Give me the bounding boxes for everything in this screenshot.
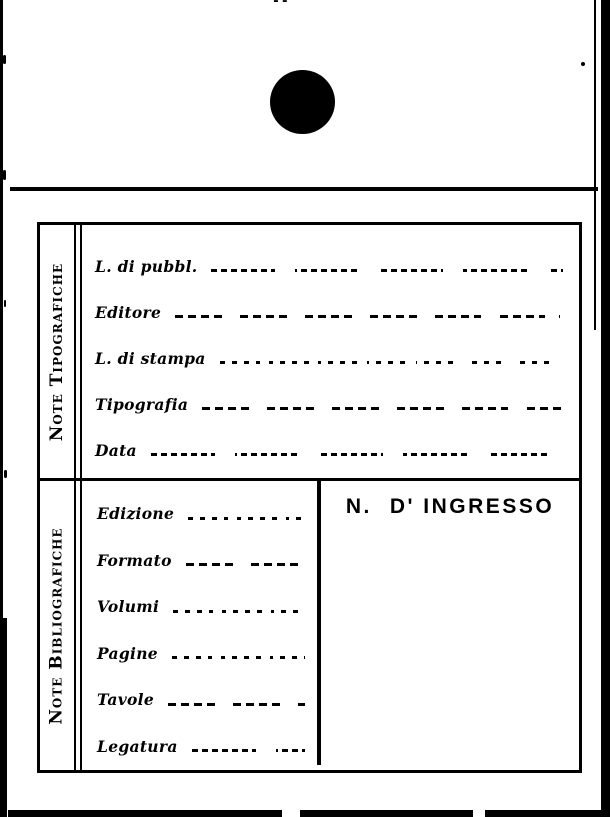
side-label-column: Note Bibliografiche	[40, 481, 74, 770]
top-edge-dashes: --	[272, 0, 290, 9]
scan-edge-right-band	[601, 0, 610, 817]
field-write-line	[220, 361, 563, 364]
field-label: Volumi	[97, 599, 159, 615]
field-write-line	[211, 269, 563, 272]
scan-speck	[4, 300, 6, 307]
field-row-legatura: Legatura	[97, 714, 305, 761]
ingresso-prefix: N.	[346, 495, 372, 519]
field-write-line	[175, 315, 563, 318]
ink-stamp	[270, 70, 335, 134]
field-row-l-di-pubbl: L. di pubbl.	[95, 234, 563, 280]
section-content: Edizione Formato Volumi Pagine	[82, 481, 579, 770]
field-row-formato: Formato	[97, 528, 305, 575]
section-side-label: Note Tipografiche	[47, 262, 67, 440]
field-row-edizione: Edizione	[97, 481, 305, 528]
field-row-l-di-stampa: L. di stampa	[95, 326, 563, 372]
field-write-line	[202, 407, 563, 410]
double-rule	[74, 225, 82, 478]
ingresso-panel: N. D' INGRESSO	[321, 481, 579, 770]
field-write-line	[168, 703, 305, 706]
scan-speck	[4, 470, 7, 478]
field-row-pagine: Pagine	[97, 621, 305, 668]
field-label: Edizione	[97, 506, 174, 522]
library-card-scan: -- Note Tipografiche L. di pubbl. Editor…	[0, 0, 610, 817]
field-label: Data	[95, 443, 137, 459]
section-side-label: Note Bibliografiche	[47, 527, 67, 724]
field-row-data: Data	[95, 418, 563, 464]
field-row-tavole: Tavole	[97, 667, 305, 714]
field-write-line	[186, 563, 305, 566]
ingresso-title: D' INGRESSO	[390, 495, 554, 519]
field-row-tipografia: Tipografia	[95, 372, 563, 418]
field-label: Editore	[95, 305, 161, 321]
section-note-tipografiche: Note Tipografiche L. di pubbl. Editore L…	[40, 225, 579, 478]
field-row-volumi: Volumi	[97, 574, 305, 621]
scan-edge-bottom	[8, 810, 604, 817]
fields-area: Edizione Formato Volumi Pagine	[82, 481, 317, 770]
scan-edge-left-blob	[0, 618, 7, 817]
field-row-editore: Editore	[95, 280, 563, 326]
catalog-form-box: Note Tipografiche L. di pubbl. Editore L…	[37, 222, 582, 773]
double-rule	[74, 481, 82, 770]
field-label: L. di pubbl.	[95, 259, 197, 275]
horizontal-rule	[10, 187, 598, 191]
field-write-line	[172, 656, 305, 659]
field-write-line	[192, 749, 305, 752]
field-label: Formato	[97, 553, 172, 569]
fields-area: L. di pubbl. Editore L. di stampa Tipogr…	[82, 225, 579, 478]
field-label: Pagine	[97, 646, 158, 662]
section-note-bibliografiche: Note Bibliografiche Edizione Formato Vol…	[40, 481, 579, 770]
scan-edge-right-line	[594, 0, 596, 330]
scan-speck	[581, 62, 585, 66]
field-write-line	[151, 453, 563, 456]
field-label: Tipografia	[95, 397, 188, 413]
scan-speck	[3, 170, 6, 180]
side-label-column: Note Tipografiche	[40, 225, 74, 478]
field-label: L. di stampa	[95, 351, 206, 367]
scan-speck	[3, 55, 6, 64]
field-write-line	[188, 517, 305, 520]
field-write-line	[173, 610, 305, 613]
field-label: Legatura	[97, 739, 178, 755]
field-label: Tavole	[97, 692, 154, 708]
